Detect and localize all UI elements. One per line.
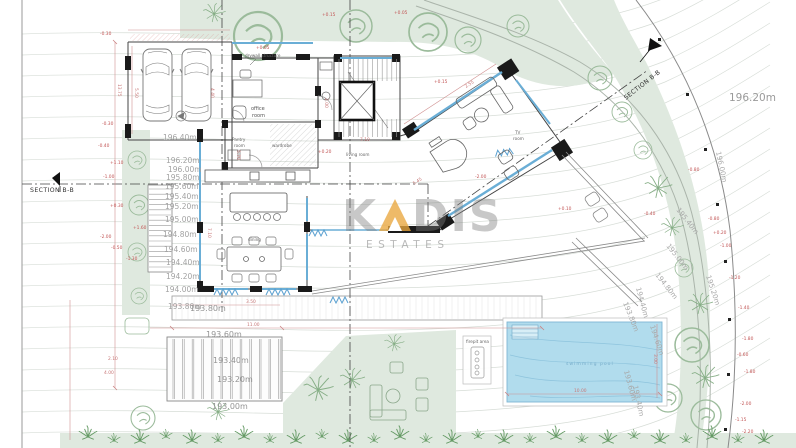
spot-elevation: -0.30 (102, 121, 114, 127)
dim-number: 7.10 (360, 137, 370, 143)
watermark-estates: ESTATES (366, 239, 449, 251)
dim-number: 2.00 (323, 98, 329, 108)
pantry-room-label2: room (234, 143, 245, 148)
living-room-label: living room (346, 152, 369, 157)
dim-number: 4.00 (104, 370, 114, 376)
spot-elevation: -0.80 (688, 167, 700, 173)
dim-number: 10.00 (574, 388, 587, 394)
contour-label: 195.40m (165, 192, 199, 201)
spot-elevation: -0.30 (100, 31, 112, 37)
car-1 (141, 49, 174, 121)
spot-elevation: -0.40 (644, 211, 656, 217)
contour-label: 196.20m (729, 92, 776, 104)
spot-elevation: -1.80 (744, 369, 756, 375)
spot-elevation: -0.40 (98, 143, 110, 149)
dim-number: 5.50 (133, 88, 139, 98)
contour-label: 195.20m (165, 202, 199, 211)
wood-deck (167, 337, 282, 401)
office-room-label2: room (252, 113, 265, 119)
contour-label: 194.60m (164, 245, 198, 254)
dining-label: dining (248, 237, 261, 242)
spot-elevation: -0.60 (737, 352, 749, 358)
lower-terrace (172, 296, 542, 320)
spot-elevation: -0.80 (708, 216, 720, 222)
contour-label: 195.60m (165, 182, 199, 191)
contour-label: 193.80m (190, 304, 226, 313)
car-2 (180, 49, 213, 121)
spot-elevation: +1.60 (133, 225, 147, 231)
contour-label: 193.00m (212, 402, 248, 411)
spot-elevation: -1.20 (729, 275, 741, 281)
spot-elevation: -2.00 (475, 174, 487, 180)
tv-room-label2: room (513, 136, 524, 141)
spot-elevation: -1.00 (103, 174, 115, 180)
spot-elevation: -0.50 (111, 245, 123, 251)
contour-labels-left: 196.40m 196.20m 196.00m 195.80m 195.60m … (163, 133, 202, 311)
dim-number: 3.50 (246, 299, 256, 305)
contour-label: 196.40m (163, 133, 197, 142)
spot-elevation: -2.20 (742, 429, 754, 435)
watermark-dis: DIS (412, 191, 503, 242)
spot-elevation: +0.15 (322, 12, 336, 18)
spot-elevation: -1.30 (126, 256, 138, 262)
dim-number: 5.70 (235, 150, 241, 160)
contour-label: 193.60m (206, 330, 242, 339)
dim-number: 3.00 (652, 354, 658, 364)
contour-label: 196.20m (166, 156, 200, 165)
contour-label: 193.20m (217, 375, 253, 384)
spot-elevation: +0.20 (318, 149, 332, 155)
watermark-k: K (342, 191, 378, 242)
contour-label: 194.20m (166, 272, 200, 281)
spot-elevation: -1.80 (742, 336, 754, 342)
contour-label: 193.40m (213, 356, 249, 365)
contour-label: 195.00m (165, 215, 199, 224)
contour-label: 194.80m (163, 230, 197, 239)
tv-room-label: TV (514, 130, 521, 135)
dim-number: 2.10 (108, 356, 118, 362)
spot-elevation: -1.00 (720, 243, 732, 249)
spot-elevation: +0.30 (110, 203, 124, 209)
spot-elevation: +0.05 (394, 10, 408, 16)
spot-elevation: +0.10 (558, 206, 572, 212)
contour-label: 195.80m (166, 173, 200, 182)
insulation-hatch (130, 34, 230, 41)
spot-elevation: +1.10 (110, 160, 124, 166)
spot-elevation: +0.20 (713, 230, 727, 236)
spot-elevation: -2.00 (740, 401, 752, 407)
dim-number: 13.75 (116, 84, 122, 97)
pantry-room-label: Pantry (232, 137, 246, 142)
spot-elevation: -1.15 (735, 417, 747, 423)
section-label-left: SECTION B-B (30, 187, 74, 194)
pool-steps (512, 325, 538, 339)
office-room-label: office (251, 106, 265, 112)
wardrobe-label: wardrobe (272, 143, 292, 148)
drywall-structure-label: drywall structure (245, 53, 281, 58)
dim-number: 7.10 (206, 228, 212, 238)
spot-elevation: +0.05 (256, 45, 270, 51)
contour-label: 194.40m (166, 258, 200, 267)
swimming-pool-label: swimming pool (566, 361, 614, 367)
floor-plan-page: 196.40m 196.20m 196.00m 195.80m 195.60m … (0, 0, 796, 448)
dim-number: 11.00 (247, 322, 260, 328)
spot-elevation: +0.15 (434, 79, 448, 85)
spot-elevation: -2.00 (100, 234, 112, 240)
contour-label: 194.00m (165, 285, 199, 294)
spot-elevation: -1.40 (738, 305, 750, 311)
floor-plan-canvas: 196.40m 196.20m 196.00m 195.80m 195.60m … (0, 0, 796, 448)
firepit-label: firepit area (466, 339, 489, 344)
dim-number: 4.40 (209, 88, 215, 98)
